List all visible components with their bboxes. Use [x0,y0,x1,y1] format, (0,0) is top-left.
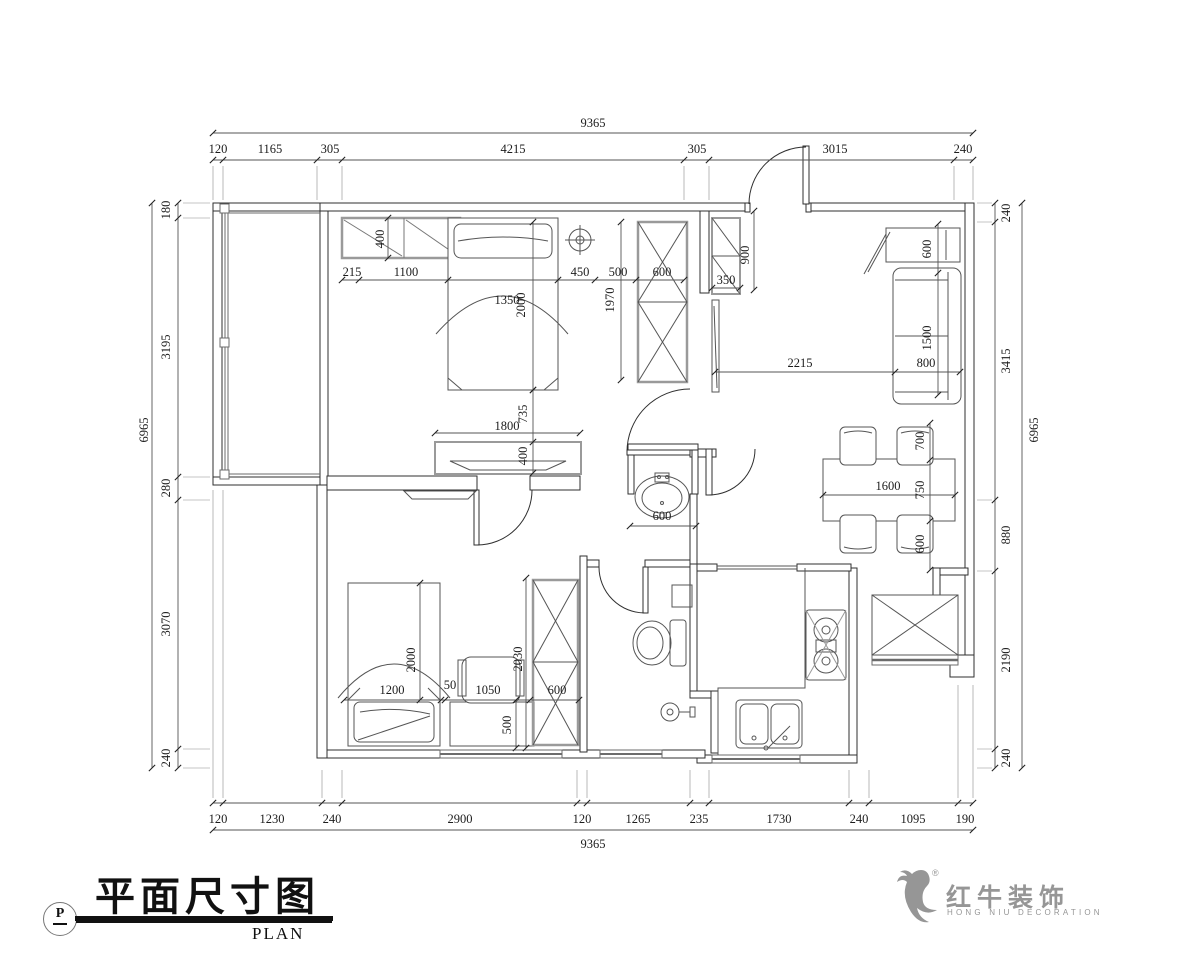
dimension-label: 235 [690,812,709,826]
dimension-label: 50 [444,678,457,692]
dimension-label: 1230 [260,812,285,826]
dimension-label: 600 [920,240,934,259]
dimension-label: 880 [999,526,1013,545]
dimension-label: 1050 [476,683,501,697]
walls [213,203,974,763]
dimension-label: 120 [573,812,592,826]
dimension-label: 4215 [501,142,526,156]
dimension-label: 1600 [876,479,901,493]
dimension-label: 180 [159,201,173,220]
tv-panel-living [712,300,719,392]
dimension-label: 500 [500,716,514,735]
title-underline [75,916,333,921]
dimension-label: 2030 [511,647,525,672]
dimension-label: 700 [913,432,927,451]
dimension-label: 240 [954,142,973,156]
dimension-label: 120 [209,142,228,156]
dimension-label: 2000 [514,293,528,318]
bedroom1-tv-cabinet [435,442,581,474]
title-block: P 平面尺寸图 PLAN [30,858,360,958]
bedroom2-bed [338,583,450,746]
dimension-label: 9365 [581,116,606,130]
ceiling-light-icon [565,225,595,255]
toilet [633,585,692,666]
dimension-label: 2900 [448,812,473,826]
dimension-label: 600 [653,509,672,523]
dimension-label: 400 [373,230,387,249]
dimension-label: 6965 [137,418,151,443]
bedroom2-door [474,490,532,545]
kitchen-sink [736,700,802,750]
bedroom2-wardrobe [533,580,578,745]
dimension-label: 1200 [380,683,405,697]
brand-name-en: HONG NIU DECORATION [947,908,1103,917]
dimension-label: 3015 [823,142,848,156]
dimension-label: 1500 [920,326,934,351]
dimension-label: 900 [738,246,752,265]
dimension-label: 735 [516,405,530,424]
dimension-label: 240 [159,749,173,768]
kitchen-sliding-door [717,566,797,569]
dimension-label: 1265 [626,812,651,826]
dimension-label: 305 [321,142,340,156]
dimension-label: 215 [343,265,362,279]
stove [806,610,846,680]
dimension-label: 120 [209,812,228,826]
entry-door [745,146,811,212]
dimension-label: 6965 [1027,418,1041,443]
bathroom-door [599,567,648,613]
dimension-label: 750 [913,481,927,500]
dimension-label: 350 [717,273,736,287]
dimension-label: 400 [516,447,530,466]
drawing-sheet: 9365120116530542153053015240120123024029… [0,0,1200,976]
living-side-cabinet [864,228,960,274]
dimension-label: 2215 [788,356,813,370]
dimension-label: 280 [159,479,173,498]
bedroom2-tv-panel [404,491,476,499]
dimension-label: 500 [609,265,628,279]
dimension-label: 3415 [999,349,1013,374]
dimension-label: 240 [999,749,1013,768]
utility-platform [872,595,958,655]
dimension-label: 1165 [258,142,283,156]
dimension-label: 9365 [581,837,606,851]
dimension-label: 2000 [404,648,418,673]
registered-mark: ® [932,868,939,878]
kitchen-counter [718,568,805,755]
floor-plan: 9365120116530542153053015240120123024029… [0,0,1200,976]
dimension-label: 600 [548,683,567,697]
dimension-label: 1100 [394,265,419,279]
drawing-title-en: PLAN [252,924,304,944]
bedroom1-wardrobe [638,222,687,382]
dimension-label: 600 [913,535,927,554]
dimension-label: 190 [956,812,975,826]
dimension-label: 3070 [159,612,173,637]
dimension-label: 305 [688,142,707,156]
shower-head-icon [661,703,695,721]
dimension-label: 2190 [999,648,1013,673]
dimension-label: 240 [323,812,342,826]
dimension-label: 600 [653,265,672,279]
dimension-label: 1095 [901,812,926,826]
plan-symbol: P [53,906,67,925]
dimension-label: 240 [999,204,1013,223]
dimension-label: 800 [917,356,936,370]
bedroom1-shelf [342,218,460,258]
drawing-title: 平面尺寸图 [95,864,320,922]
dimension-label: 1730 [767,812,792,826]
dimension-label: 3195 [159,335,173,360]
dimension-label: 1970 [603,288,617,313]
dimension-label: 240 [850,812,869,826]
company-logo: ® 红牛装饰 HONG NIU DECORATION [888,862,1088,928]
dimension-label: 450 [571,265,590,279]
plan-symbol-circle: P [43,902,77,936]
